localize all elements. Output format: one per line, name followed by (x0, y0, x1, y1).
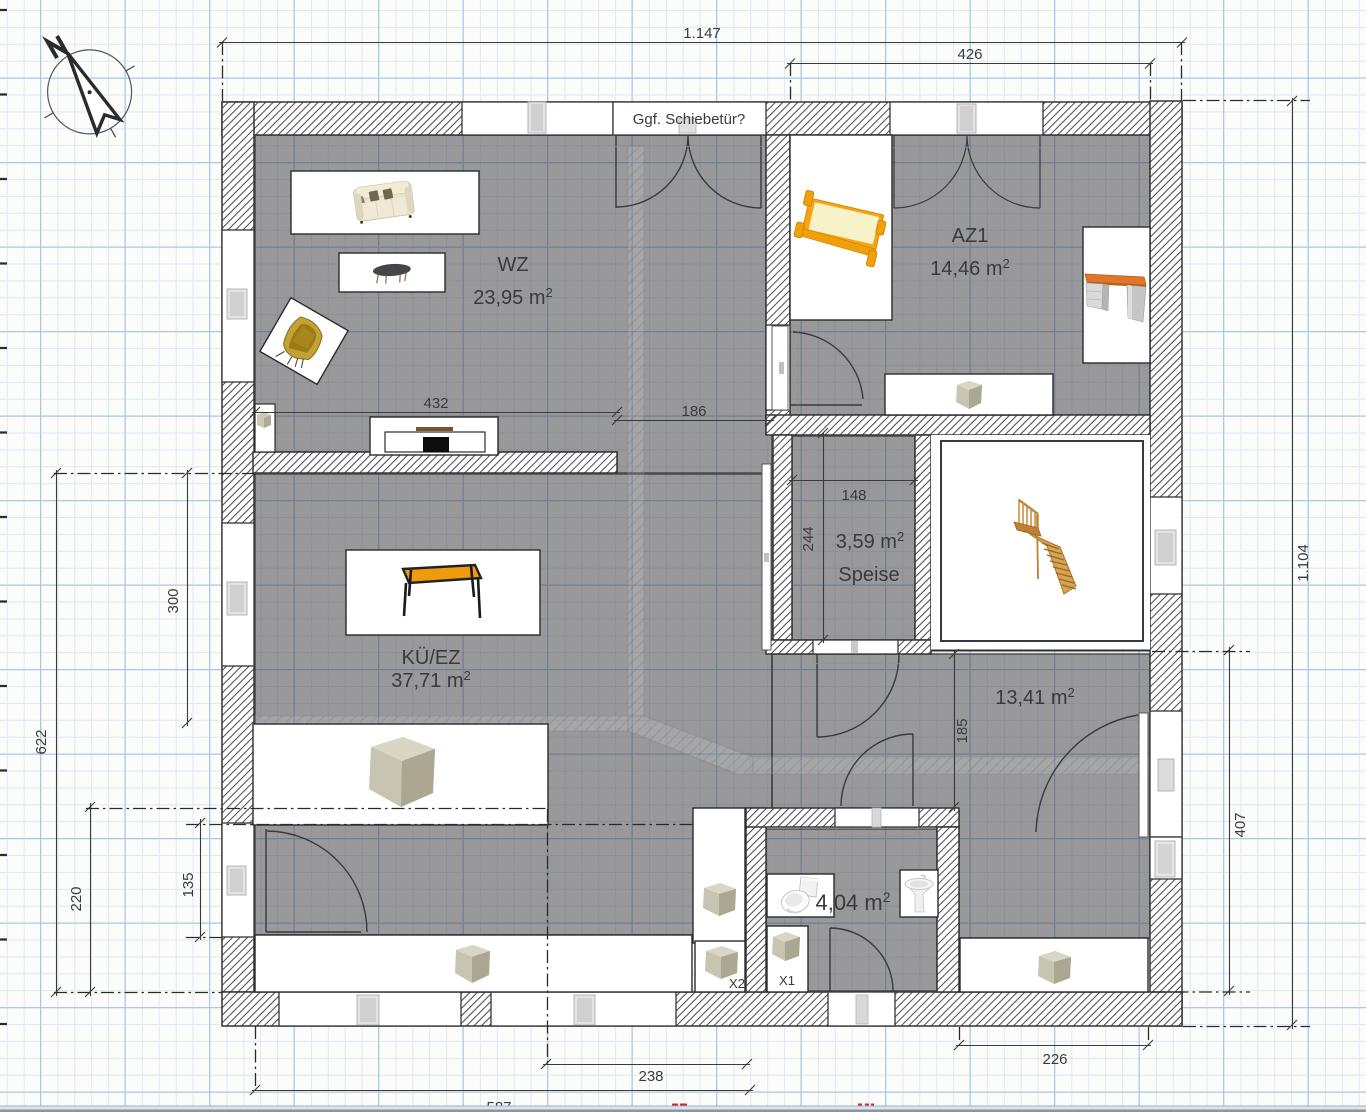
svg-text:148: 148 (841, 487, 866, 504)
svg-text:AZ1: AZ1 (952, 225, 989, 247)
svg-text:220: 220 (68, 886, 85, 911)
svg-text:407: 407 (1232, 812, 1249, 837)
svg-text:Ggf. Schiebetür?: Ggf. Schiebetür? (633, 111, 746, 128)
svg-text:622: 622 (33, 729, 50, 754)
svg-text:238: 238 (638, 1068, 663, 1085)
svg-text:185: 185 (954, 718, 971, 743)
svg-text:244: 244 (800, 526, 817, 551)
svg-text:4,04 m2: 4,04 m2 (815, 889, 890, 915)
svg-text:13,41 m2: 13,41 m2 (995, 685, 1075, 709)
svg-text:426: 426 (957, 46, 982, 63)
svg-text:KÜ/EZ: KÜ/EZ (402, 647, 461, 669)
svg-text:37,71 m2: 37,71 m2 (391, 668, 471, 692)
svg-text:WZ: WZ (497, 254, 528, 276)
svg-text:1.147: 1.147 (683, 25, 721, 42)
svg-text:X1: X1 (779, 973, 795, 988)
svg-text:3,59 m2: 3,59 m2 (836, 529, 904, 553)
svg-text:432: 432 (423, 395, 448, 412)
svg-text:186: 186 (681, 403, 706, 420)
svg-text:Speise: Speise (838, 564, 899, 586)
svg-text:300: 300 (165, 588, 182, 613)
svg-text:X2: X2 (729, 976, 745, 991)
svg-text:226: 226 (1042, 1051, 1067, 1068)
svg-text:14,46 m2: 14,46 m2 (930, 256, 1010, 280)
svg-text:23,95 m2: 23,95 m2 (473, 285, 553, 309)
svg-text:135: 135 (180, 872, 197, 897)
svg-text:1.104: 1.104 (1295, 544, 1312, 582)
